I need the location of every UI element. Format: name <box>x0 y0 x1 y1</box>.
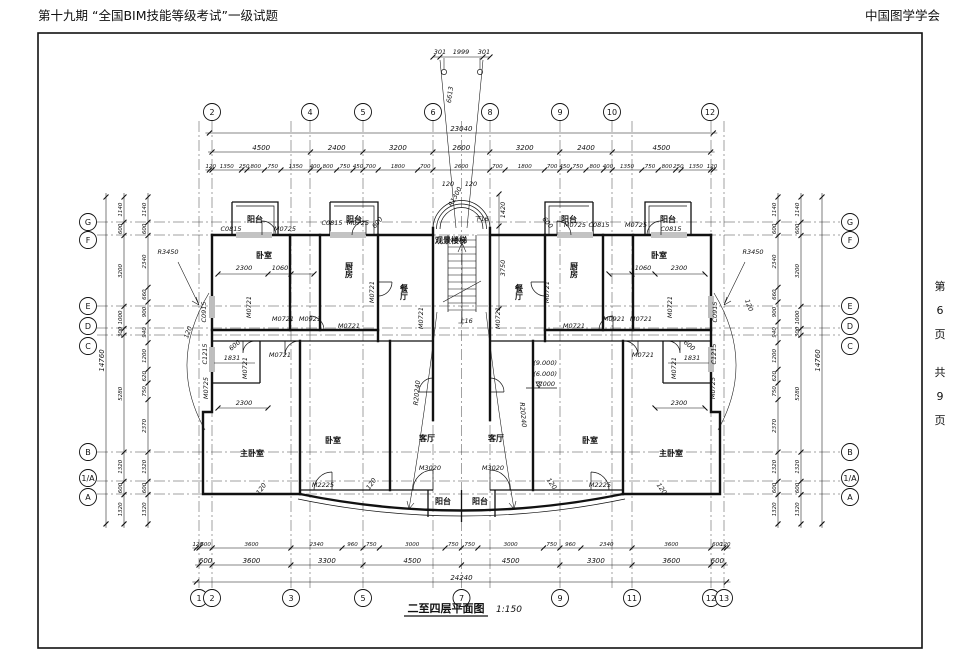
dim-label: 120 <box>743 298 755 312</box>
dim-label: 4500 <box>502 557 520 565</box>
caption-scale: 1:150 <box>496 605 522 615</box>
dim-label: 750 <box>772 386 778 397</box>
room-label-living: 客厅 <box>418 433 435 443</box>
dim-label: 1320 <box>772 502 778 516</box>
window-tag: C0915 <box>711 301 719 322</box>
door-tag: M0721 <box>632 351 654 359</box>
door-tag: M0725 <box>202 377 210 399</box>
room-label-bedroom: 卧室 <box>256 250 272 260</box>
dim-label: 700 <box>420 164 431 170</box>
dim-label: 2370 <box>772 418 778 432</box>
right-main-chain: 114060032001000300528013206001320 <box>795 193 804 528</box>
dim-label: 3200 <box>795 263 801 277</box>
dim-label: 600 <box>540 215 554 230</box>
room-label-balcony: 阳台 <box>247 214 263 224</box>
level-marks: (9.000) (6.000) 3.000 <box>526 359 557 388</box>
grid-bubble-label: A <box>847 493 853 502</box>
dim-label: 750 <box>464 542 475 548</box>
grid-bubble-label: 11 <box>627 594 637 603</box>
stair-down-label: 下16 <box>474 215 489 223</box>
door-tag: M0721 <box>269 351 291 359</box>
window-tag: C0815 <box>588 221 609 229</box>
grid-bubble-label: D <box>847 322 853 331</box>
dim-label: 1140 <box>118 202 124 216</box>
dim-label: 450 <box>353 164 364 170</box>
door-tag: M0721 <box>338 322 360 330</box>
grid-bubble-label: G <box>847 218 853 227</box>
left-detail-chain: 1140600234066090094012006207502370132060… <box>142 193 151 528</box>
grid-bubble-label: E <box>847 302 852 311</box>
dim-label: 600 <box>772 223 778 234</box>
dim-label: 250 <box>239 164 250 170</box>
top-total-chain: 23040 <box>205 125 717 136</box>
grid-bubbles-left: GFEDCB1/AA <box>80 214 97 506</box>
door-window-tags: C0815 M0725 C0815 M0725 M0725 C0815 M072… <box>200 219 719 489</box>
dim-label: 23040 <box>450 125 473 133</box>
grid-bubble-label: A <box>85 493 91 502</box>
dim-label: 2400 <box>328 144 346 152</box>
left-main-chain: 114060032001000300528013206001320 <box>118 193 127 528</box>
dim-label: 1350 <box>289 164 303 170</box>
door-tag: M0721 <box>543 281 551 303</box>
dim-label: 1420 <box>499 202 507 219</box>
grid-bubble-label: 1/A <box>81 474 95 483</box>
dim-label: 4500 <box>403 557 421 565</box>
room-label-kitchen: 厨房 <box>345 261 354 279</box>
dim-label: 3300 <box>587 557 605 565</box>
dim-label: 600 <box>200 542 211 548</box>
dim-label: 4500 <box>252 144 270 152</box>
dim-label: 3600 <box>243 557 261 565</box>
grid-bubble-label: 6 <box>430 108 435 117</box>
dim-label: 2340 <box>599 542 613 548</box>
grid-bubble-label: F <box>848 236 853 245</box>
dim-label: 660 <box>772 289 778 300</box>
dim-label: 120 <box>707 164 718 170</box>
dim-label: 600 <box>772 482 778 493</box>
page-number: 第 6 页 共 9 页 <box>935 279 946 427</box>
dim-label: 3300 <box>318 557 336 565</box>
door-tag: M0725 <box>564 221 586 229</box>
door-tag: M0921 <box>603 315 625 323</box>
grid-bubble-label: 3 <box>288 594 293 603</box>
dim-label: 1350 <box>620 164 634 170</box>
window-tag: C0815 <box>321 219 342 227</box>
dim-label: 800 <box>323 164 334 170</box>
dim-label: 800 <box>662 164 673 170</box>
dim-label: 1800 <box>391 164 405 170</box>
window-tag: C1215 <box>201 343 209 364</box>
level-label: 3.000 <box>536 380 555 388</box>
dim-label: 1200 <box>142 349 148 363</box>
window-tag: C0815 <box>220 225 241 233</box>
dim-label: 3600 <box>662 557 680 565</box>
exam-sheet: 第十九期 “全国BIM技能等级考试”一级试题 中国图学学会 第 6 页 共 9 … <box>0 0 954 661</box>
dim-label: 1350 <box>220 164 234 170</box>
door-tag: M2225 <box>312 481 334 489</box>
dim-label: 700 <box>365 164 376 170</box>
door-tag: M3020 <box>419 464 441 472</box>
door-tag: M0721 <box>245 296 253 318</box>
room-label-dining: 餐厅 <box>399 283 409 301</box>
dim-label: 3000 <box>405 542 419 548</box>
dim-label: 3200 <box>118 263 124 277</box>
dim-label: 3600 <box>245 542 259 548</box>
door-tag: M0725 <box>274 225 296 233</box>
dim-label: 600 <box>795 482 801 493</box>
dim-label: 6613 <box>445 86 455 103</box>
dim-label: 700 <box>492 164 503 170</box>
dim-label: 1320 <box>795 459 801 473</box>
room-label-bedroom: 卧室 <box>582 435 598 445</box>
dim-label: 600 <box>142 482 148 493</box>
dim-label: 600 <box>118 482 124 493</box>
interior-dims: 2300 1060 600 1831 2300 1060 2300 600 18… <box>157 48 763 496</box>
grid-bubbles-right: GFEDCB1/AA <box>842 214 859 506</box>
dim-label: 750 <box>366 542 377 548</box>
sheet-border <box>38 33 922 648</box>
room-label-bedroom: 卧室 <box>651 250 667 260</box>
dim-label: 14760 <box>98 349 106 372</box>
radius-label: R3450 <box>157 248 178 256</box>
dim-label: 750 <box>546 542 557 548</box>
dim-label: 2340 <box>309 542 323 548</box>
dim-label: 1140 <box>795 202 801 216</box>
dim-label: 2340 <box>772 254 778 268</box>
right-detail-chain: 1140600234066090094012006207502370132060… <box>772 193 781 528</box>
door-tag: M0725 <box>625 221 647 229</box>
dim-label: 940 <box>772 327 778 338</box>
room-label-balcony: 阳台 <box>435 496 451 506</box>
dim-label: 4500 <box>653 144 671 152</box>
dim-label: 600 <box>370 215 384 230</box>
top-main-chain: 4500240032002600320024004500 <box>208 144 715 155</box>
door-tag: M0721 <box>368 281 376 303</box>
grid-bubble-label: D <box>85 322 91 331</box>
dim-label: 450 <box>559 164 570 170</box>
room-label-living: 客厅 <box>487 433 504 443</box>
dim-label: 1320 <box>118 459 124 473</box>
dim-label: 2300 <box>671 399 688 407</box>
dim-label: 1831 <box>684 354 701 362</box>
dim-label: 120 <box>205 164 216 170</box>
dim-label: 250 <box>673 164 684 170</box>
room-label-dining: 餐厅 <box>514 283 524 301</box>
dim-label: 750 <box>645 164 656 170</box>
dim-label: 600 <box>142 223 148 234</box>
dim-label: 1200 <box>772 349 778 363</box>
dim-label: 120 <box>365 476 379 491</box>
dim-label: 300 <box>795 326 801 337</box>
grid-bubble-label: 2 <box>209 108 214 117</box>
grid-bubble-label: G <box>85 218 91 227</box>
grid-bubble-label: C <box>847 342 853 351</box>
dim-label: 1000 <box>118 310 124 324</box>
dim-label: 800 <box>251 164 262 170</box>
dim-label: 14760 <box>814 349 822 372</box>
dim-label: 24240 <box>450 574 473 582</box>
dim-label: 1999 <box>453 48 470 56</box>
dim-label: 3600 <box>664 542 678 548</box>
room-label-master-bedroom: 主卧室 <box>240 448 264 458</box>
dim-label: 2300 <box>236 399 253 407</box>
door-tag: M0721 <box>630 315 652 323</box>
dim-label: 2370 <box>142 418 148 432</box>
dim-label: 960 <box>565 542 576 548</box>
window-tag: C0915 <box>200 301 208 322</box>
radius-label: R3450 <box>742 248 763 256</box>
grid-bubble-label: 9 <box>557 108 562 117</box>
room-label-stair: 观景楼梯 <box>435 235 467 245</box>
dim-label: 5280 <box>118 386 124 400</box>
dim-label: 660 <box>142 289 148 300</box>
grid-bubble-label: 1 <box>196 594 201 603</box>
dim-label: 1320 <box>142 459 148 473</box>
dim-label: 300 <box>118 326 124 337</box>
room-label-balcony: 阳台 <box>472 496 488 506</box>
dim-label: 3000 <box>504 542 518 548</box>
dim-label: 1320 <box>142 502 148 516</box>
door-tag: M0721 <box>670 357 678 379</box>
dim-label: 1320 <box>795 502 801 516</box>
dim-label: 5280 <box>795 386 801 400</box>
grid-bubble-label: 8 <box>487 108 492 117</box>
dim-label: 2400 <box>577 144 595 152</box>
dim-label: 1320 <box>772 459 778 473</box>
dim-label: 120 <box>182 325 194 339</box>
room-label-master-bedroom: 主卧室 <box>659 448 683 458</box>
dim-label: 1831 <box>224 354 241 362</box>
radius-label: R20240 <box>412 380 422 406</box>
grid-bubble-label: B <box>85 448 91 457</box>
top-detail-chain: 1201350250800750135040080075045070018007… <box>205 164 717 173</box>
dim-label: 800 <box>589 164 600 170</box>
dim-label: 600 <box>711 557 725 565</box>
dim-label: 1350 <box>689 164 703 170</box>
room-label-balcony: 阳台 <box>660 214 676 224</box>
stair-radius-label: R1300 <box>447 186 464 208</box>
dim-label: 3200 <box>389 144 407 152</box>
dim-label: 120 <box>545 476 559 491</box>
page-char: 页 <box>935 328 946 341</box>
grid-bubble-label: 5 <box>360 108 365 117</box>
dim-label: 1140 <box>772 202 778 216</box>
door-tag: M0921 <box>299 315 321 323</box>
room-label-kitchen: 厨房 <box>570 261 579 279</box>
dim-label: 1060 <box>272 264 289 272</box>
dim-label: 120 <box>720 542 731 548</box>
room-label-bedroom: 卧室 <box>325 435 341 445</box>
page-char: 页 <box>935 414 946 427</box>
dim-label: 1060 <box>635 264 652 272</box>
exam-title: 第十九期 “全国BIM技能等级考试”一级试题 <box>38 8 278 23</box>
caption-title: 二至四层平面图 <box>408 602 485 615</box>
door-tag: M0721 <box>563 322 585 330</box>
grid-bubble-label: 9 <box>557 594 562 603</box>
grid-bubble-label: C <box>85 342 91 351</box>
dim-label: 900 <box>142 306 148 317</box>
stair-up-label: 上16 <box>458 317 473 325</box>
level-label: (6.000) <box>533 370 557 378</box>
dim-label: 1800 <box>518 164 532 170</box>
dim-label: 900 <box>772 306 778 317</box>
grid-bubble-label: F <box>86 236 91 245</box>
right-total-chain: 14760 <box>814 193 825 528</box>
floor-plan-drawing: 第十九期 “全国BIM技能等级考试”一级试题 中国图学学会 第 6 页 共 9 … <box>0 0 954 661</box>
dim-label: 400 <box>603 164 614 170</box>
page-char: 共 <box>935 366 946 379</box>
grid-bubble-label: 12 <box>706 594 716 603</box>
grid-bubble-label: 4 <box>307 108 312 117</box>
dim-label: 1000 <box>795 310 801 324</box>
door-tag: M0721 <box>494 307 502 329</box>
grid-bubble-label: 10 <box>607 108 617 117</box>
page-char: 第 <box>935 279 946 293</box>
page-char: 9 <box>937 390 944 403</box>
unit-walls <box>178 202 433 517</box>
dim-label: 750 <box>573 164 584 170</box>
door-tag: M0725 <box>347 219 369 227</box>
dim-label: 1140 <box>142 202 148 216</box>
dim-label: 3750 <box>499 260 507 277</box>
dim-label: 600 <box>795 223 801 234</box>
door-tag: M3020 <box>482 464 504 472</box>
grid-bubble-label: 13 <box>719 594 729 603</box>
window-tag: C0815 <box>660 225 681 233</box>
grid-bubble-label: 5 <box>360 594 365 603</box>
dim-label: 750 <box>340 164 351 170</box>
dim-label: 2300 <box>671 264 688 272</box>
dim-label: 960 <box>347 542 358 548</box>
grid-bubble-label: 2 <box>209 594 214 603</box>
dim-label: 3200 <box>516 144 534 152</box>
dim-label: 750 <box>142 386 148 397</box>
door-tag: M0721 <box>241 357 249 379</box>
dim-label: 750 <box>267 164 278 170</box>
dim-label: 700 <box>547 164 558 170</box>
dim-label: 301 <box>478 48 490 56</box>
grid-bubble-label: B <box>847 448 853 457</box>
door-tag: M0721 <box>272 315 294 323</box>
door-tag: M0721 <box>417 307 425 329</box>
dim-label: 620 <box>142 370 148 381</box>
dim-label: 120 <box>442 180 454 188</box>
door-tag: M2225 <box>589 481 611 489</box>
page-char: 6 <box>937 304 944 317</box>
grid-bubble-label: 12 <box>705 108 715 117</box>
org-name: 中国图学学会 <box>865 8 941 23</box>
level-label: (9.000) <box>533 359 557 367</box>
grid-bubbles-top: 2456891012 <box>204 104 719 121</box>
radius-label: R20240 <box>518 402 528 428</box>
dim-label: 301 <box>434 48 446 56</box>
dim-label: 620 <box>772 370 778 381</box>
door-tag: M0721 <box>666 296 674 318</box>
drawing-caption: 二至四层平面图 1:150 <box>404 602 522 616</box>
dim-label: 400 <box>310 164 321 170</box>
grid-bubble-label: 1/A <box>843 474 857 483</box>
grid-bubble-label: E <box>85 302 90 311</box>
left-total-chain: 14760 <box>98 193 109 528</box>
dim-label: 2300 <box>236 264 253 272</box>
door-tag: M0725 <box>709 377 717 399</box>
dim-label: 600 <box>199 557 213 565</box>
dim-label: 120 <box>465 180 477 188</box>
dim-label: 750 <box>448 542 459 548</box>
dim-label: 940 <box>142 327 148 338</box>
dim-label: 2340 <box>142 254 148 268</box>
dim-label: 2600 <box>452 144 470 152</box>
dim-label: 1320 <box>118 502 124 516</box>
dim-label: 2600 <box>454 164 468 170</box>
dim-label: 600 <box>118 223 124 234</box>
window-tag: C1215 <box>710 343 718 364</box>
